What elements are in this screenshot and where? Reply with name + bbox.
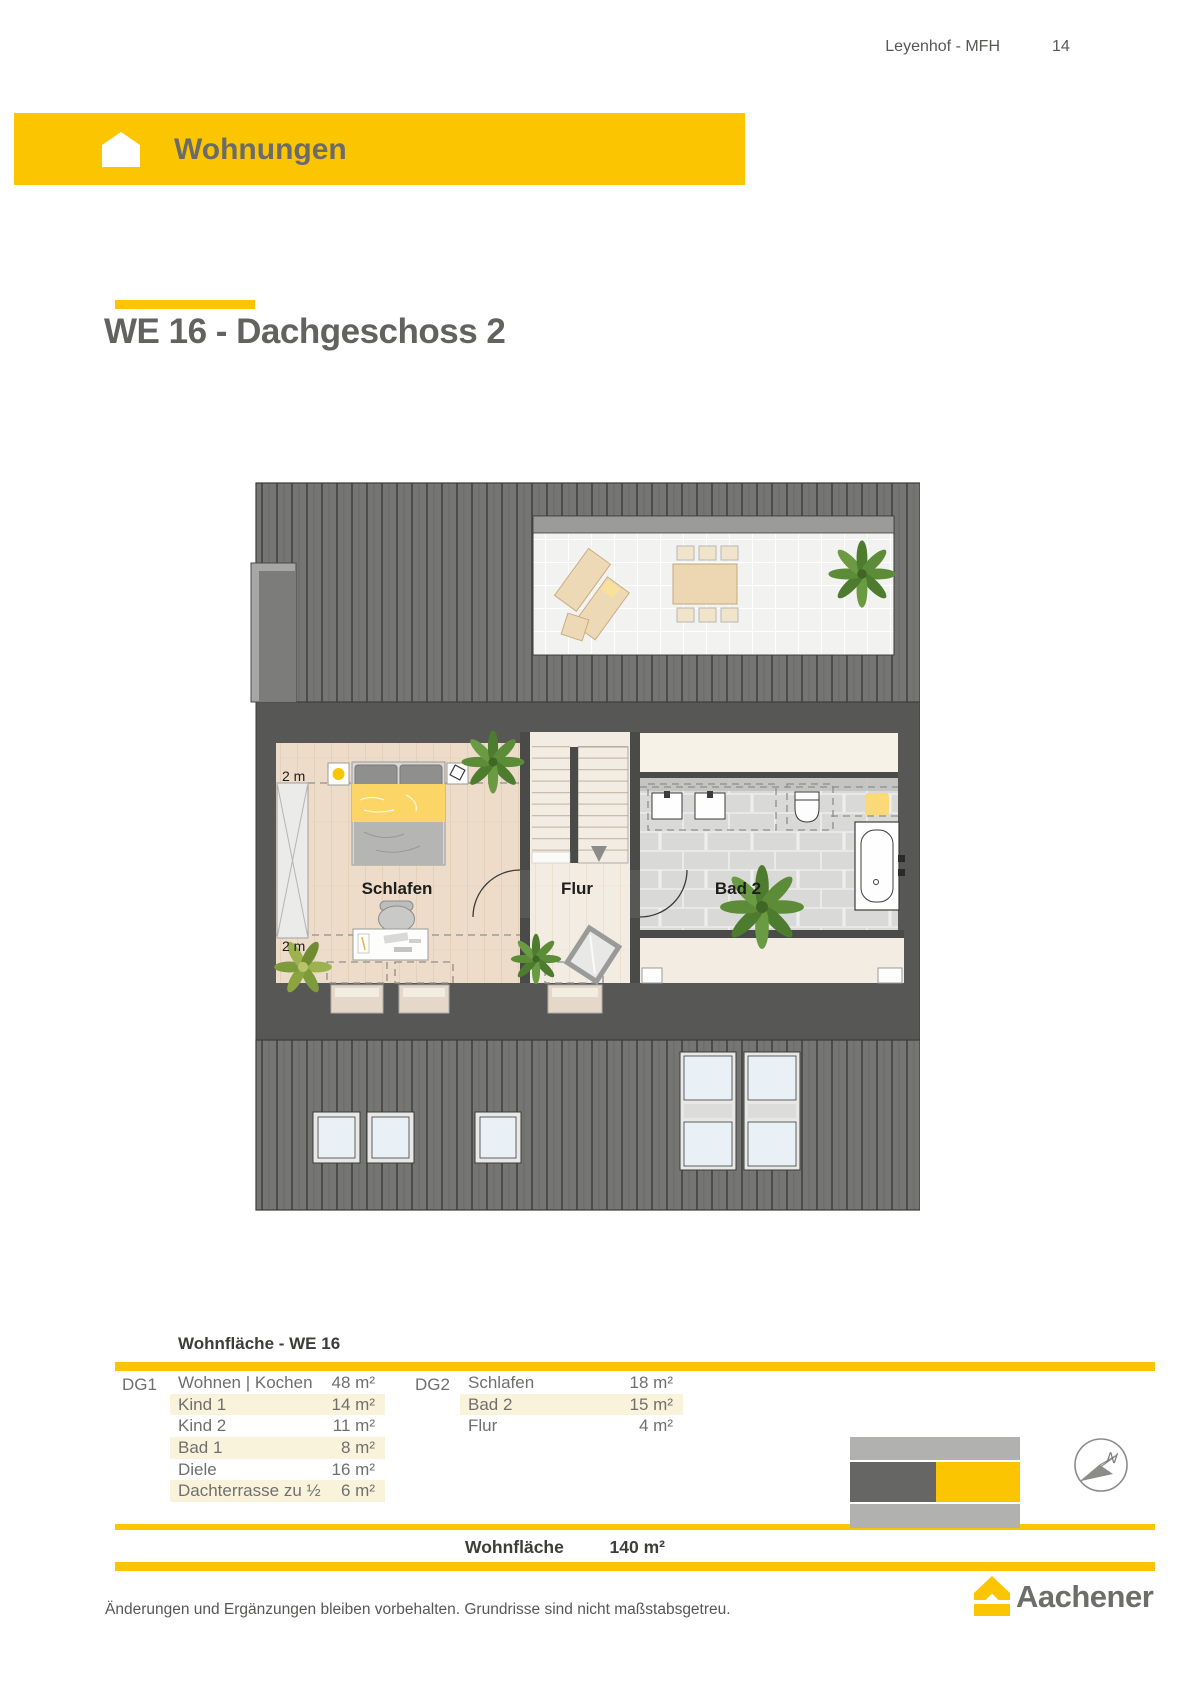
dining-set — [673, 546, 738, 622]
bath-knee-strip — [640, 733, 898, 772]
south-knee-wall — [640, 930, 904, 938]
area-row: Flur4 m² — [460, 1415, 683, 1437]
washbasin-1 — [652, 791, 682, 819]
building-legend-bottom — [850, 1504, 1020, 1528]
room-area: 6 m² — [341, 1481, 375, 1501]
house-icon — [102, 132, 140, 167]
room-name: Bad 1 — [178, 1438, 222, 1458]
hallway-label: Flur — [561, 879, 593, 898]
bath-knee-wall — [640, 772, 898, 778]
room-area: 4 m² — [639, 1416, 673, 1436]
section-banner: Wohnungen — [14, 113, 745, 185]
building-legend-this-unit — [936, 1462, 1020, 1502]
bathroom-label: Bad 2 — [715, 879, 761, 898]
area-row: Bad 18 m² — [170, 1437, 385, 1459]
room-area: 11 m² — [333, 1416, 375, 1436]
height-marker-bottom: 2 m — [282, 938, 305, 954]
floorplan-drawing: Schlafen Flur Bad 2 2 m 2 m — [246, 470, 920, 1212]
bathroom-plant — [720, 865, 804, 949]
disclaimer-text: Änderungen und Ergänzungen bleiben vorbe… — [105, 1601, 731, 1619]
bedroom-plant — [462, 731, 525, 794]
bedroom-label: Schlafen — [362, 879, 433, 898]
page-title: WE 16 - Dachgeschoss 2 — [104, 312, 505, 352]
floorplan: Schlafen Flur Bad 2 2 m 2 m — [246, 470, 920, 1212]
room-name: Kind 2 — [178, 1416, 226, 1436]
room-area: 16 m² — [332, 1460, 375, 1480]
table-top-rule — [115, 1362, 1155, 1371]
nightstand-left — [328, 763, 349, 785]
area-row: Wohnen | Kochen48 m² — [170, 1372, 385, 1394]
brand-logo-icon — [974, 1576, 1010, 1616]
bedside-lamp — [333, 768, 345, 780]
banner-title: Wohnungen — [174, 113, 347, 185]
brand-name: Aachener — [1016, 1576, 1153, 1616]
room-area: 48 m² — [332, 1373, 375, 1393]
roof-terrace — [533, 516, 896, 655]
area-row: Schlafen18 m² — [460, 1372, 683, 1394]
room-name: Bad 2 — [468, 1395, 512, 1415]
room-name: Diele — [178, 1460, 217, 1480]
south-strip-floor — [640, 938, 904, 983]
room-area: 18 m² — [630, 1373, 673, 1393]
desk-chair — [379, 901, 415, 932]
room-name: Flur — [468, 1416, 497, 1436]
project-name: Leyenhof - MFH — [860, 38, 1000, 56]
area-row: Diele16 m² — [170, 1459, 385, 1481]
room-name: Schlafen — [468, 1373, 534, 1393]
room-name: Dachterrasse zu ½ — [178, 1481, 321, 1501]
area-group-dg2: Schlafen18 m²Bad 215 m²Flur4 m² — [460, 1372, 683, 1437]
title-accent-rule — [115, 300, 255, 309]
area-row: Dachterrasse zu ½6 m² — [170, 1480, 385, 1502]
floor-label-dg1: DG1 — [122, 1374, 157, 1396]
floor-label-dg2: DG2 — [415, 1374, 450, 1396]
room-area: 8 m² — [341, 1438, 375, 1458]
washbasin-2 — [695, 791, 725, 819]
hall-plant — [511, 934, 561, 984]
table-bottom-rule — [115, 1562, 1155, 1571]
height-marker-top: 2 m — [282, 768, 305, 784]
room-name: Wohnen | Kochen — [178, 1373, 313, 1393]
area-table-caption: Wohnfläche - WE 16 — [178, 1334, 340, 1354]
bathtub — [855, 822, 905, 910]
area-row: Kind 211 m² — [170, 1415, 385, 1437]
page-number: 14 — [1052, 38, 1070, 56]
nightstand-right — [447, 763, 468, 784]
north-compass: N — [1072, 1436, 1130, 1494]
south-window-left — [642, 968, 662, 983]
building-legend-top — [850, 1437, 1020, 1460]
south-window-right — [878, 968, 902, 983]
double-bed — [352, 762, 445, 865]
area-group-dg1: Wohnen | Kochen48 m²Kind 114 m²Kind 211 … — [170, 1372, 385, 1502]
area-row: Kind 114 m² — [170, 1394, 385, 1416]
room-name: Kind 1 — [178, 1395, 226, 1415]
bath-mat — [865, 793, 889, 815]
area-row: Bad 215 m² — [460, 1394, 683, 1416]
building-legend-other-unit — [850, 1462, 936, 1502]
roof-dormer-left — [251, 563, 296, 702]
wardrobe — [277, 783, 308, 938]
toilet — [795, 792, 819, 822]
compass-north-label: N — [1105, 1449, 1118, 1467]
room-area: 15 m² — [630, 1395, 673, 1415]
staircase — [532, 745, 628, 863]
total-area-value: 140 m² — [540, 1535, 665, 1559]
desk — [353, 929, 428, 960]
room-area: 14 m² — [332, 1395, 375, 1415]
terrace-plant — [828, 540, 895, 607]
